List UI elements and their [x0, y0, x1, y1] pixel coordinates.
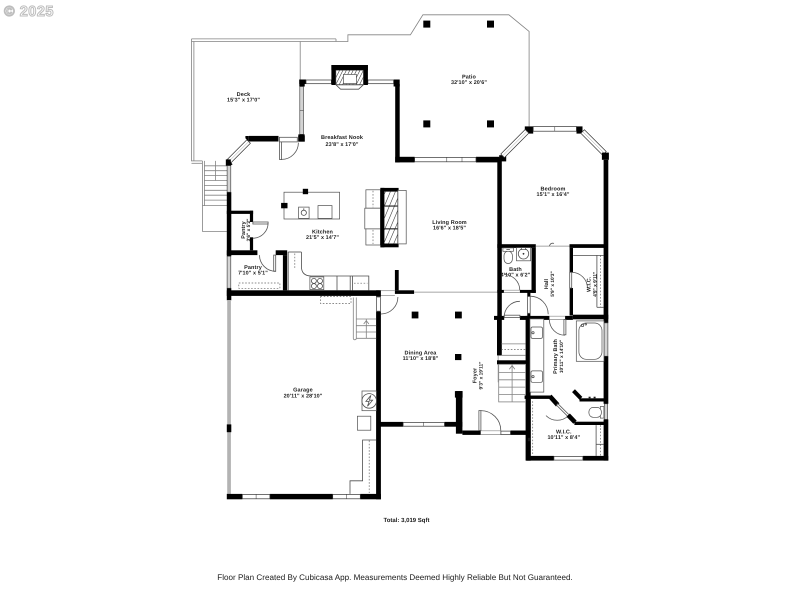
svg-text:© 2025: © 2025 [4, 4, 54, 20]
svg-text:16'6" x 18'5": 16'6" x 18'5" [433, 226, 466, 232]
svg-text:4'10" x 6'2": 4'10" x 6'2" [501, 273, 531, 279]
svg-text:23'8" x 17'0": 23'8" x 17'0" [326, 142, 359, 148]
svg-text:20'11" x 28'10": 20'11" x 28'10" [284, 393, 323, 399]
svg-text:11'10" x 18'8": 11'10" x 18'8" [403, 356, 439, 362]
svg-text:15'3" x 17'0": 15'3" x 17'0" [227, 98, 260, 104]
svg-text:10'11" x 8'4": 10'11" x 8'4" [547, 435, 580, 441]
svg-text:4'9" x 9'11": 4'9" x 9'11" [592, 272, 598, 297]
svg-text:9'3" x 19'11": 9'3" x 19'11" [478, 362, 484, 390]
svg-text:W.I.C.: W.I.C. [587, 276, 593, 292]
svg-text:3'6" x 5'2": 3'6" x 5'2" [246, 219, 252, 242]
svg-text:Primary Bath: Primary Bath [553, 339, 559, 374]
svg-text:Total: 3,019 Sqft: Total: 3,019 Sqft [384, 517, 430, 524]
svg-text:Floor Plan Created By Cubicasa: Floor Plan Created By Cubicasa App. Meas… [217, 573, 572, 582]
svg-text:Hall: Hall [544, 278, 550, 289]
svg-text:5'9" x 10'3": 5'9" x 10'3" [550, 271, 556, 297]
svg-text:10'11" x 14'10": 10'11" x 14'10" [559, 340, 565, 373]
svg-text:7'10" x 5'1": 7'10" x 5'1" [238, 271, 268, 277]
svg-text:Foyer: Foyer [472, 367, 478, 383]
svg-text:21'5" x 14'7": 21'5" x 14'7" [306, 235, 339, 241]
svg-text:32'10" x 20'6": 32'10" x 20'6" [451, 80, 487, 86]
svg-text:15'1" x 16'4": 15'1" x 16'4" [537, 192, 570, 198]
svg-text:Breakfast Nook: Breakfast Nook [321, 135, 364, 141]
